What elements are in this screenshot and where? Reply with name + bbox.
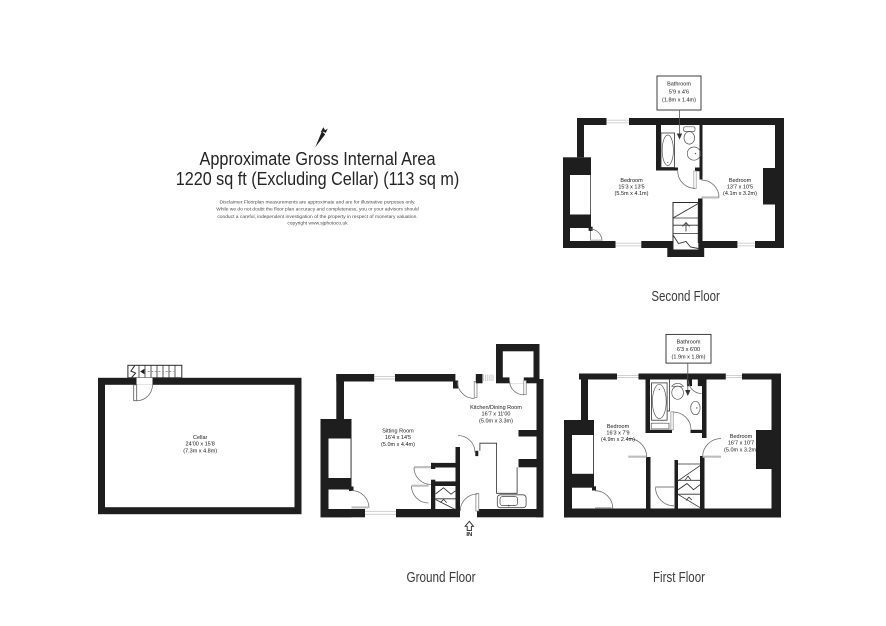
svg-text:Bedroom: Bedroom	[730, 434, 753, 440]
svg-text:Ground Floor: Ground Floor	[407, 570, 476, 586]
svg-text:Bathroom: Bathroom	[677, 340, 701, 346]
svg-text:(1.9m x 1.8m): (1.9m x 1.8m)	[672, 355, 706, 361]
svg-text:(7.3m x 4.8m): (7.3m x 4.8m)	[183, 448, 217, 454]
svg-text:conduct a careful, independent: conduct a careful, independent investiga…	[217, 214, 417, 220]
svg-text:First Floor: First Floor	[653, 570, 705, 586]
svg-text:1220 sq ft (Excluding Cellar): 1220 sq ft (Excluding Cellar) (113 sq m)	[176, 169, 460, 189]
svg-text:Bedroom: Bedroom	[607, 424, 630, 430]
svg-text:IN: IN	[466, 532, 472, 538]
svg-text:Cellar: Cellar	[193, 435, 208, 441]
svg-text:Approximate Gross Internal Are: Approximate Gross Internal Area	[200, 149, 437, 169]
svg-text:Bathroom: Bathroom	[667, 82, 691, 88]
svg-text:Disclaimer Floorplan measureme: Disclaimer Floorplan measurements are ap…	[220, 199, 416, 205]
svg-text:24'00 x 15'8: 24'00 x 15'8	[186, 442, 215, 448]
svg-text:(5.0m x 3.2m): (5.0m x 3.2m)	[724, 447, 758, 453]
svg-text:5'9 x 4'6: 5'9 x 4'6	[669, 90, 689, 96]
svg-text:(5.5m x 4.1m): (5.5m x 4.1m)	[615, 191, 649, 197]
svg-text:Bedroom: Bedroom	[620, 178, 643, 184]
svg-text:16'7 x 10'7: 16'7 x 10'7	[728, 441, 754, 447]
svg-text:Second Floor: Second Floor	[651, 289, 720, 305]
svg-text:(4.1m x 3.2m): (4.1m x 3.2m)	[723, 191, 757, 197]
svg-text:16'3 x 7'9: 16'3 x 7'9	[606, 431, 629, 437]
svg-text:Kitchen/Dining Room: Kitchen/Dining Room	[470, 405, 522, 411]
svg-text:While we do not doubt the floo: While we do not doubt the floor plan acc…	[216, 207, 419, 213]
svg-text:(4.9m x 2.4m): (4.9m x 2.4m)	[601, 437, 635, 443]
svg-text:(5.0m x 4.4m): (5.0m x 4.4m)	[381, 442, 415, 448]
svg-text:15'3 x 13'5: 15'3 x 13'5	[618, 185, 644, 191]
svg-text:(5.0m x 3.3m): (5.0m x 3.3m)	[479, 418, 513, 424]
svg-text:6'3 x 6'00: 6'3 x 6'00	[677, 347, 700, 353]
svg-text:copyright www.sjphotoco.uk: copyright www.sjphotoco.uk	[287, 221, 348, 227]
svg-text:Bedroom: Bedroom	[729, 178, 752, 184]
svg-text:13'7 x 10'5: 13'7 x 10'5	[727, 185, 753, 191]
svg-text:Sitting Room: Sitting Room	[382, 429, 414, 435]
svg-text:16'7 x 11'00: 16'7 x 11'00	[482, 412, 511, 418]
svg-text:16'4 x 14'5: 16'4 x 14'5	[385, 435, 411, 441]
svg-text:(1.8m x 1.4m): (1.8m x 1.4m)	[662, 98, 696, 104]
